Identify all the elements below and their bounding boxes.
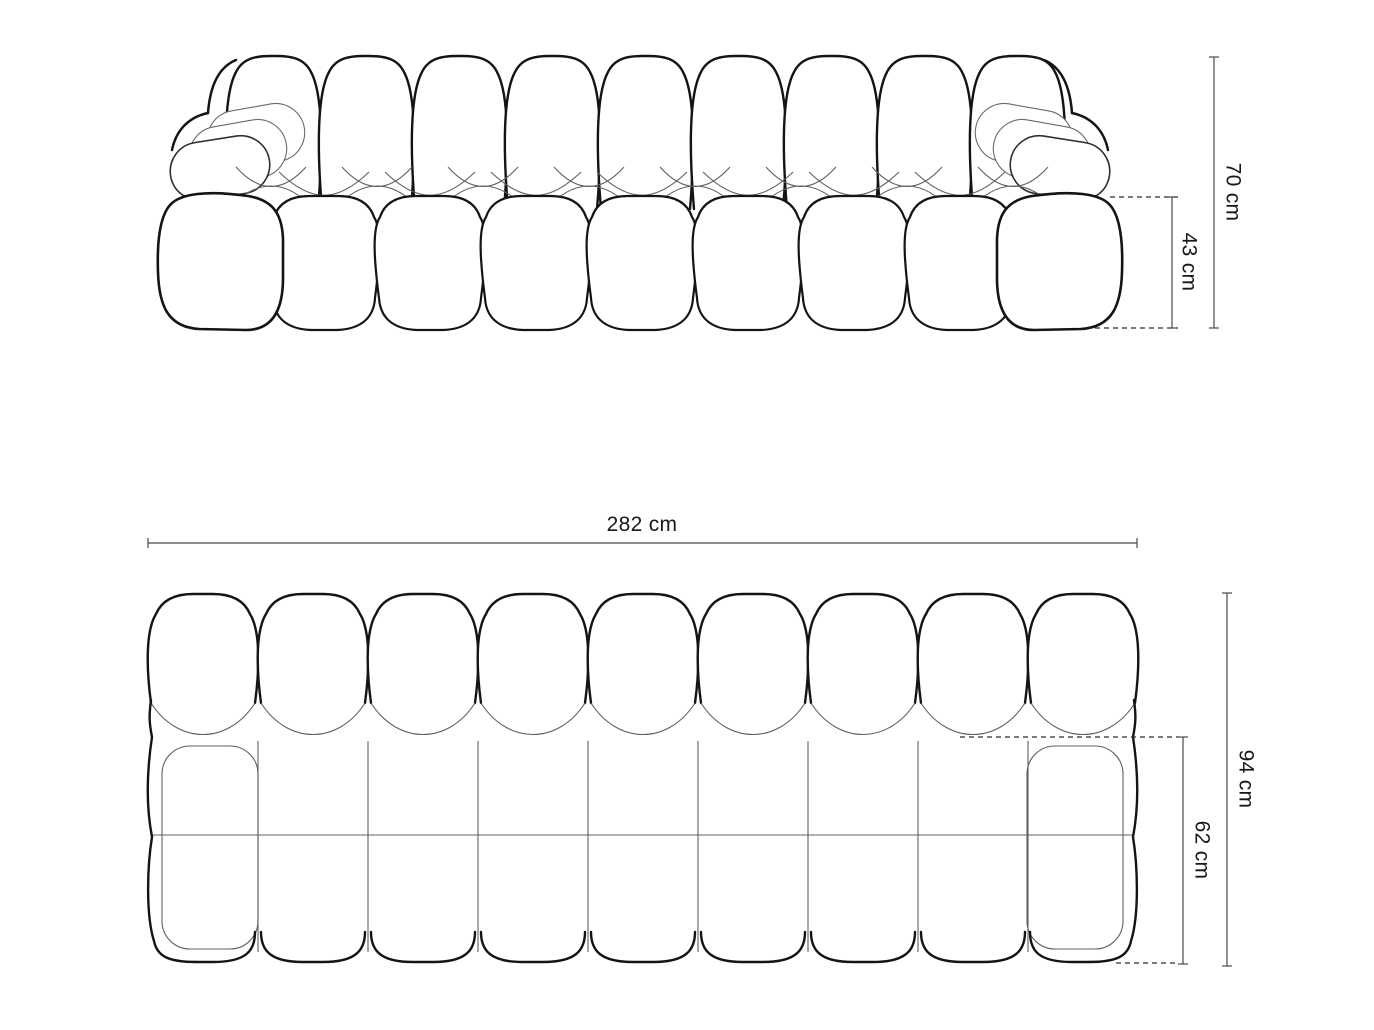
seat-cushion-bubble <box>799 196 910 330</box>
left-armrest-top-outline <box>162 746 258 949</box>
overall-height-label: 70 cm <box>1222 163 1245 222</box>
drawing-canvas: 282 cm 70 cm 43 cm 94 cm 62 cm <box>0 0 1374 1030</box>
left-armrest-front <box>158 193 283 330</box>
back-cushion-bubble <box>412 56 507 209</box>
back-cushion-bubble <box>877 56 972 209</box>
overall-width-label: 282 cm <box>607 513 678 536</box>
overall-depth-label: 94 cm <box>1235 750 1258 809</box>
sofa-technical-drawing: 282 cm 70 cm 43 cm 94 cm 62 cm <box>0 0 1374 1030</box>
seat-cushion-bubble <box>693 196 804 330</box>
plan-module-seams <box>152 741 1133 952</box>
right-armrest-top-outline <box>1027 746 1123 949</box>
overall-height-dim-line <box>1209 57 1219 328</box>
seat-cushion-bubble <box>481 196 592 330</box>
plan-view <box>148 594 1139 962</box>
plan-back-row <box>148 594 1139 735</box>
seat-cushion-bubble <box>587 196 698 330</box>
front-elevation-view <box>158 56 1122 330</box>
plan-outer-edge <box>148 700 1137 962</box>
seat-cushion-row <box>269 196 1016 330</box>
seat-depth-label: 62 cm <box>1191 821 1214 880</box>
seat-cushion-bubble <box>269 196 380 330</box>
overall-width-dim-line <box>148 538 1137 548</box>
seat-height-dim-line <box>1167 197 1177 328</box>
seat-cushion-bubble <box>375 196 486 330</box>
seat-height-label: 43 cm <box>1178 233 1201 292</box>
overall-depth-dim-line <box>1222 593 1232 966</box>
seat-depth-dim-line <box>1178 737 1188 964</box>
back-cushion-bubble <box>598 56 693 209</box>
back-cushion-bubble <box>691 56 786 209</box>
right-armrest-front <box>997 193 1122 330</box>
back-cushion-bubble <box>319 56 414 209</box>
